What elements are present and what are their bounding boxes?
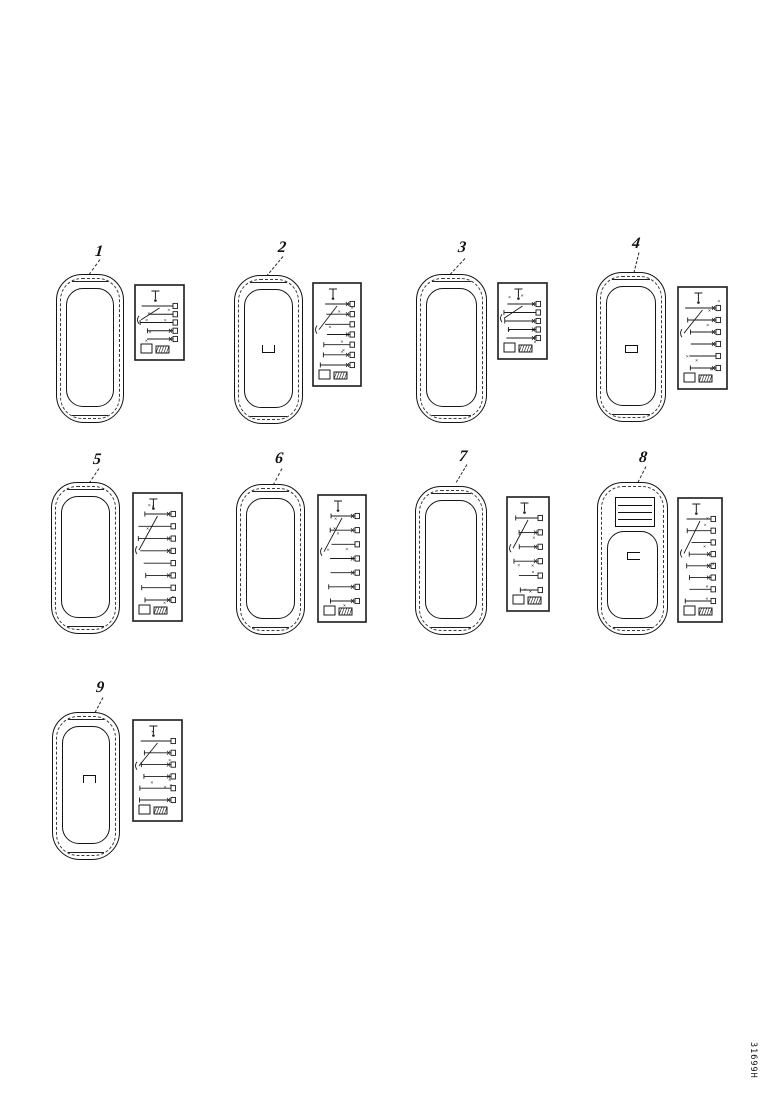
sunroof-panel-line bbox=[618, 512, 652, 513]
figure-item-6: 6 bbox=[0, 0, 778, 1100]
roof-inner-panel bbox=[244, 289, 293, 408]
figure-item-1: 1 bbox=[0, 0, 778, 1100]
windshield-header-line bbox=[72, 281, 109, 282]
vehicle-roof-outline bbox=[56, 274, 124, 423]
item-number-label: 2 bbox=[277, 241, 286, 255]
sunroof-panel-line bbox=[618, 505, 652, 506]
leader-line bbox=[450, 258, 466, 275]
item-number-label: 3 bbox=[457, 241, 466, 255]
wiring-schematic-box bbox=[677, 497, 723, 623]
rear-header-line bbox=[67, 626, 105, 627]
roof-mid-outline bbox=[419, 490, 483, 631]
figure-item-4: 4 bbox=[0, 0, 778, 1100]
vehicle-roof-outline bbox=[596, 272, 666, 422]
wiring-schematic-box bbox=[497, 282, 548, 360]
item-number-label: 7 bbox=[458, 450, 467, 464]
leader-line bbox=[633, 252, 639, 273]
roof-inner-panel bbox=[426, 288, 477, 407]
vehicle-roof-outline bbox=[234, 275, 303, 424]
roof-inner-panel bbox=[607, 531, 658, 619]
parts-diagram-page: 1 2 3 4 bbox=[0, 0, 778, 1100]
roof-inner-panel bbox=[61, 496, 110, 618]
vehicle-roof-outline bbox=[416, 274, 487, 423]
roof-marking-handle bbox=[627, 552, 640, 560]
roof-mid-outline bbox=[601, 486, 664, 631]
sunroof-panel-line bbox=[618, 519, 652, 520]
roof-mid-outline bbox=[60, 278, 120, 419]
roof-marking-bracket bbox=[262, 345, 275, 353]
leader-line bbox=[273, 468, 283, 485]
roof-marking-rectangle bbox=[625, 345, 638, 353]
item-number-label: 8 bbox=[638, 451, 647, 465]
wiring-schematic-box bbox=[132, 492, 183, 622]
wiring-schematic-box bbox=[506, 496, 550, 612]
wiring-schematic-box bbox=[317, 494, 367, 623]
roof-mid-outline bbox=[600, 276, 662, 418]
figure-item-8: 8 bbox=[0, 0, 778, 1100]
rear-header-line bbox=[68, 852, 105, 853]
windshield-header-line bbox=[612, 279, 650, 280]
roof-inner-panel bbox=[425, 500, 477, 619]
roof-mid-outline bbox=[56, 716, 116, 856]
vehicle-roof-outline bbox=[51, 482, 120, 634]
roof-mid-outline bbox=[420, 278, 483, 419]
item-number-label: 1 bbox=[94, 245, 103, 259]
rear-header-line bbox=[72, 415, 109, 416]
vehicle-roof-outline bbox=[415, 486, 487, 635]
windshield-header-line bbox=[432, 281, 471, 282]
roof-inner-panel bbox=[66, 288, 114, 407]
wiring-schematic-box bbox=[677, 286, 728, 390]
leader-line bbox=[637, 466, 646, 482]
roof-inner-panel bbox=[246, 498, 295, 619]
leader-line bbox=[95, 697, 104, 712]
item-number-label: 9 bbox=[95, 681, 104, 695]
vehicle-roof-outline bbox=[597, 482, 668, 635]
roof-marking-bracket bbox=[83, 775, 96, 783]
leader-line bbox=[266, 256, 283, 277]
roof-inner-panel bbox=[606, 286, 656, 406]
rear-header-line bbox=[612, 414, 650, 415]
item-number-label: 6 bbox=[274, 452, 283, 466]
windshield-header-line bbox=[431, 493, 470, 494]
rear-header-line bbox=[613, 627, 652, 628]
roof-mid-outline bbox=[55, 486, 116, 630]
item-number-label: 5 bbox=[92, 453, 101, 467]
sunroof-panel bbox=[615, 497, 655, 527]
figure-item-5: 5 bbox=[0, 0, 778, 1100]
roof-mid-outline bbox=[238, 279, 299, 420]
figure-item-7: 7 bbox=[0, 0, 778, 1100]
windshield-header-line bbox=[252, 491, 290, 492]
leader-line bbox=[85, 259, 100, 279]
wiring-schematic-box bbox=[132, 719, 183, 822]
wiring-schematic-box bbox=[312, 282, 362, 387]
leader-line bbox=[89, 468, 100, 483]
rear-header-line bbox=[432, 415, 471, 416]
roof-inner-panel bbox=[62, 726, 110, 844]
windshield-header-line bbox=[250, 282, 288, 283]
roof-mid-outline bbox=[240, 488, 301, 631]
vehicle-roof-outline bbox=[236, 484, 305, 635]
rear-header-line bbox=[250, 416, 288, 417]
rear-header-line bbox=[252, 627, 290, 628]
figure-item-9: 9 bbox=[0, 0, 778, 1100]
windshield-header-line bbox=[68, 719, 105, 720]
figure-item-3: 3 bbox=[0, 0, 778, 1100]
item-number-label: 4 bbox=[631, 237, 640, 251]
vehicle-roof-outline bbox=[52, 712, 120, 860]
figure-item-2: 2 bbox=[0, 0, 778, 1100]
wiring-schematic-box bbox=[134, 284, 185, 361]
rear-header-line bbox=[431, 627, 470, 628]
windshield-header-line bbox=[67, 489, 105, 490]
figure-code: 31699H bbox=[748, 1042, 758, 1096]
leader-line bbox=[456, 464, 468, 483]
